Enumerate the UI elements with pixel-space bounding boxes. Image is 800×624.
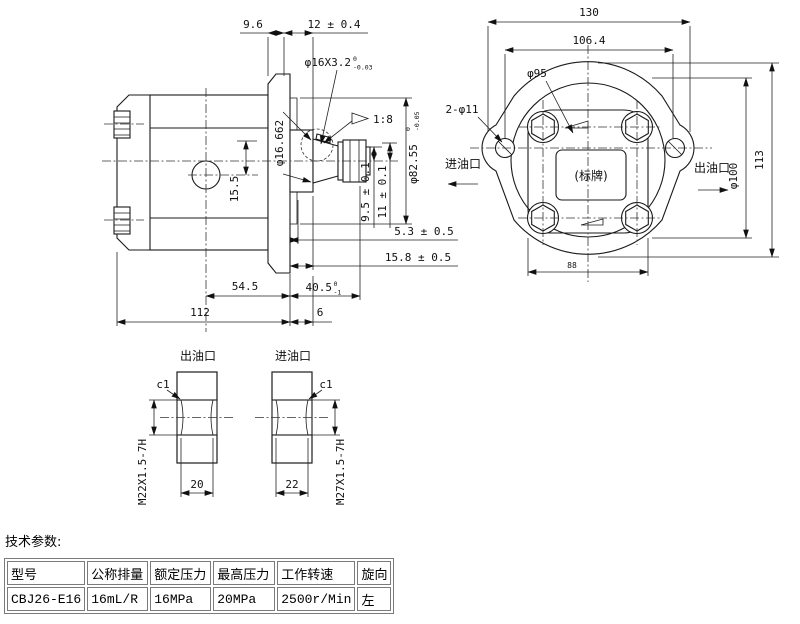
inlet-bore-width: 22 [285,478,298,491]
inlet-section-title: 进油口 [275,349,311,363]
pump-drawing: 9.6 12 ± 0.4 φ16X3.2 0 -0.03 1:8 φ16.662… [0,0,800,535]
dim-9-6: 9.6 [243,18,263,31]
dim-112: 112 [190,306,210,319]
header-max-pressure: 最高压力 [213,561,275,585]
value-speed: 2500r/Min [277,587,355,611]
header-displacement: 公称排量 [87,561,148,585]
inlet-label: 进油口 [445,157,481,171]
dim-130: 130 [579,6,599,19]
nameplate-label: (标牌) [574,169,607,183]
dim-11: 11 ± 0.1 [376,166,389,219]
front-flange-plate [268,74,290,273]
outlet-thread: M22X1.5-7H [136,439,149,505]
side-view [102,74,398,332]
dim-40-5-tol-lower: -1 [334,289,342,297]
value-rotation: 左 [357,587,391,611]
value-rated-pressure: 16MPa [150,587,211,611]
dim-88: 88 [567,261,577,270]
taper-symbol-icon [352,113,368,124]
outlet-bore-width: 20 [190,478,203,491]
header-rotation: 旋向 [357,561,391,585]
tech-params-table: 型号 公称排量 额定压力 最高压力 工作转速 旋向 CBJ26-E16 16mL… [4,558,394,614]
dim-82-55-tol-upper: 0 [404,127,412,131]
dim-key-tol-upper: 0 [353,55,357,63]
dim-5-3: 5.3 ± 0.5 [394,225,454,238]
outlet-label: 出油口 [694,161,730,175]
header-speed: 工作转速 [277,561,355,585]
inlet-port-section: 进油口 c1 M27X1.5-7H 22 [255,349,347,505]
dim-100: φ100 [727,163,740,190]
port-boss-top [114,111,130,138]
inlet-chamfer: c1 [319,378,332,391]
outlet-section-title: 出油口 [180,349,216,363]
dim-taper: 1:8 [373,113,393,126]
dim-6: 6 [317,306,324,319]
tech-params-title: 技术参数: [5,531,61,550]
header-model: 型号 [7,561,85,585]
dim-2-11: 2-φ11 [445,103,478,116]
dim-106-4: 106.4 [572,34,605,47]
dim-16-662: φ16.662 [273,120,286,166]
dim-key-main: φ16X3.2 [305,56,351,69]
dim-key-tol-lower: -0.03 [353,64,373,72]
flange-view: (标牌) [470,45,712,282]
dim-40-5-main: 40.5 [306,281,333,294]
outlet-chamfer: c1 [156,378,169,391]
dim-54-5: 54.5 [232,280,259,293]
outlet-port-section: 出油口 c1 M22X1.5-7H 20 [136,349,235,505]
value-displacement: 16mL/R [87,587,148,611]
dim-15-8: 15.8 ± 0.5 [385,251,451,264]
header-rated-pressure: 额定压力 [150,561,211,585]
dim-9-5: 9.5 ± 0.1 [359,162,372,222]
value-model: CBJ26-E16 [7,587,85,611]
dim-82-55-main: φ82.55 [407,144,420,184]
inlet-thread: M27X1.5-7H [334,439,347,505]
dim-82-55-tol-lower: -0.05 [413,111,421,131]
value-max-pressure: 20MPa [213,587,275,611]
port-boss-bottom [114,207,130,234]
gear-pump-drawing-page: 9.6 12 ± 0.4 φ16X3.2 0 -0.03 1:8 φ16.662… [0,0,800,624]
dim-15-5: 15.5 [228,176,241,203]
dim-95: φ95 [527,67,547,80]
dim-12: 12 ± 0.4 [308,18,361,31]
table-header-row: 型号 公称排量 额定压力 最高压力 工作转速 旋向 [7,561,391,585]
table-value-row: CBJ26-E16 16mL/R 16MPa 20MPa 2500r/Min 左 [7,587,391,611]
dim-40-5-tol-upper: 0 [334,280,338,288]
dim-113: 113 [753,150,766,170]
